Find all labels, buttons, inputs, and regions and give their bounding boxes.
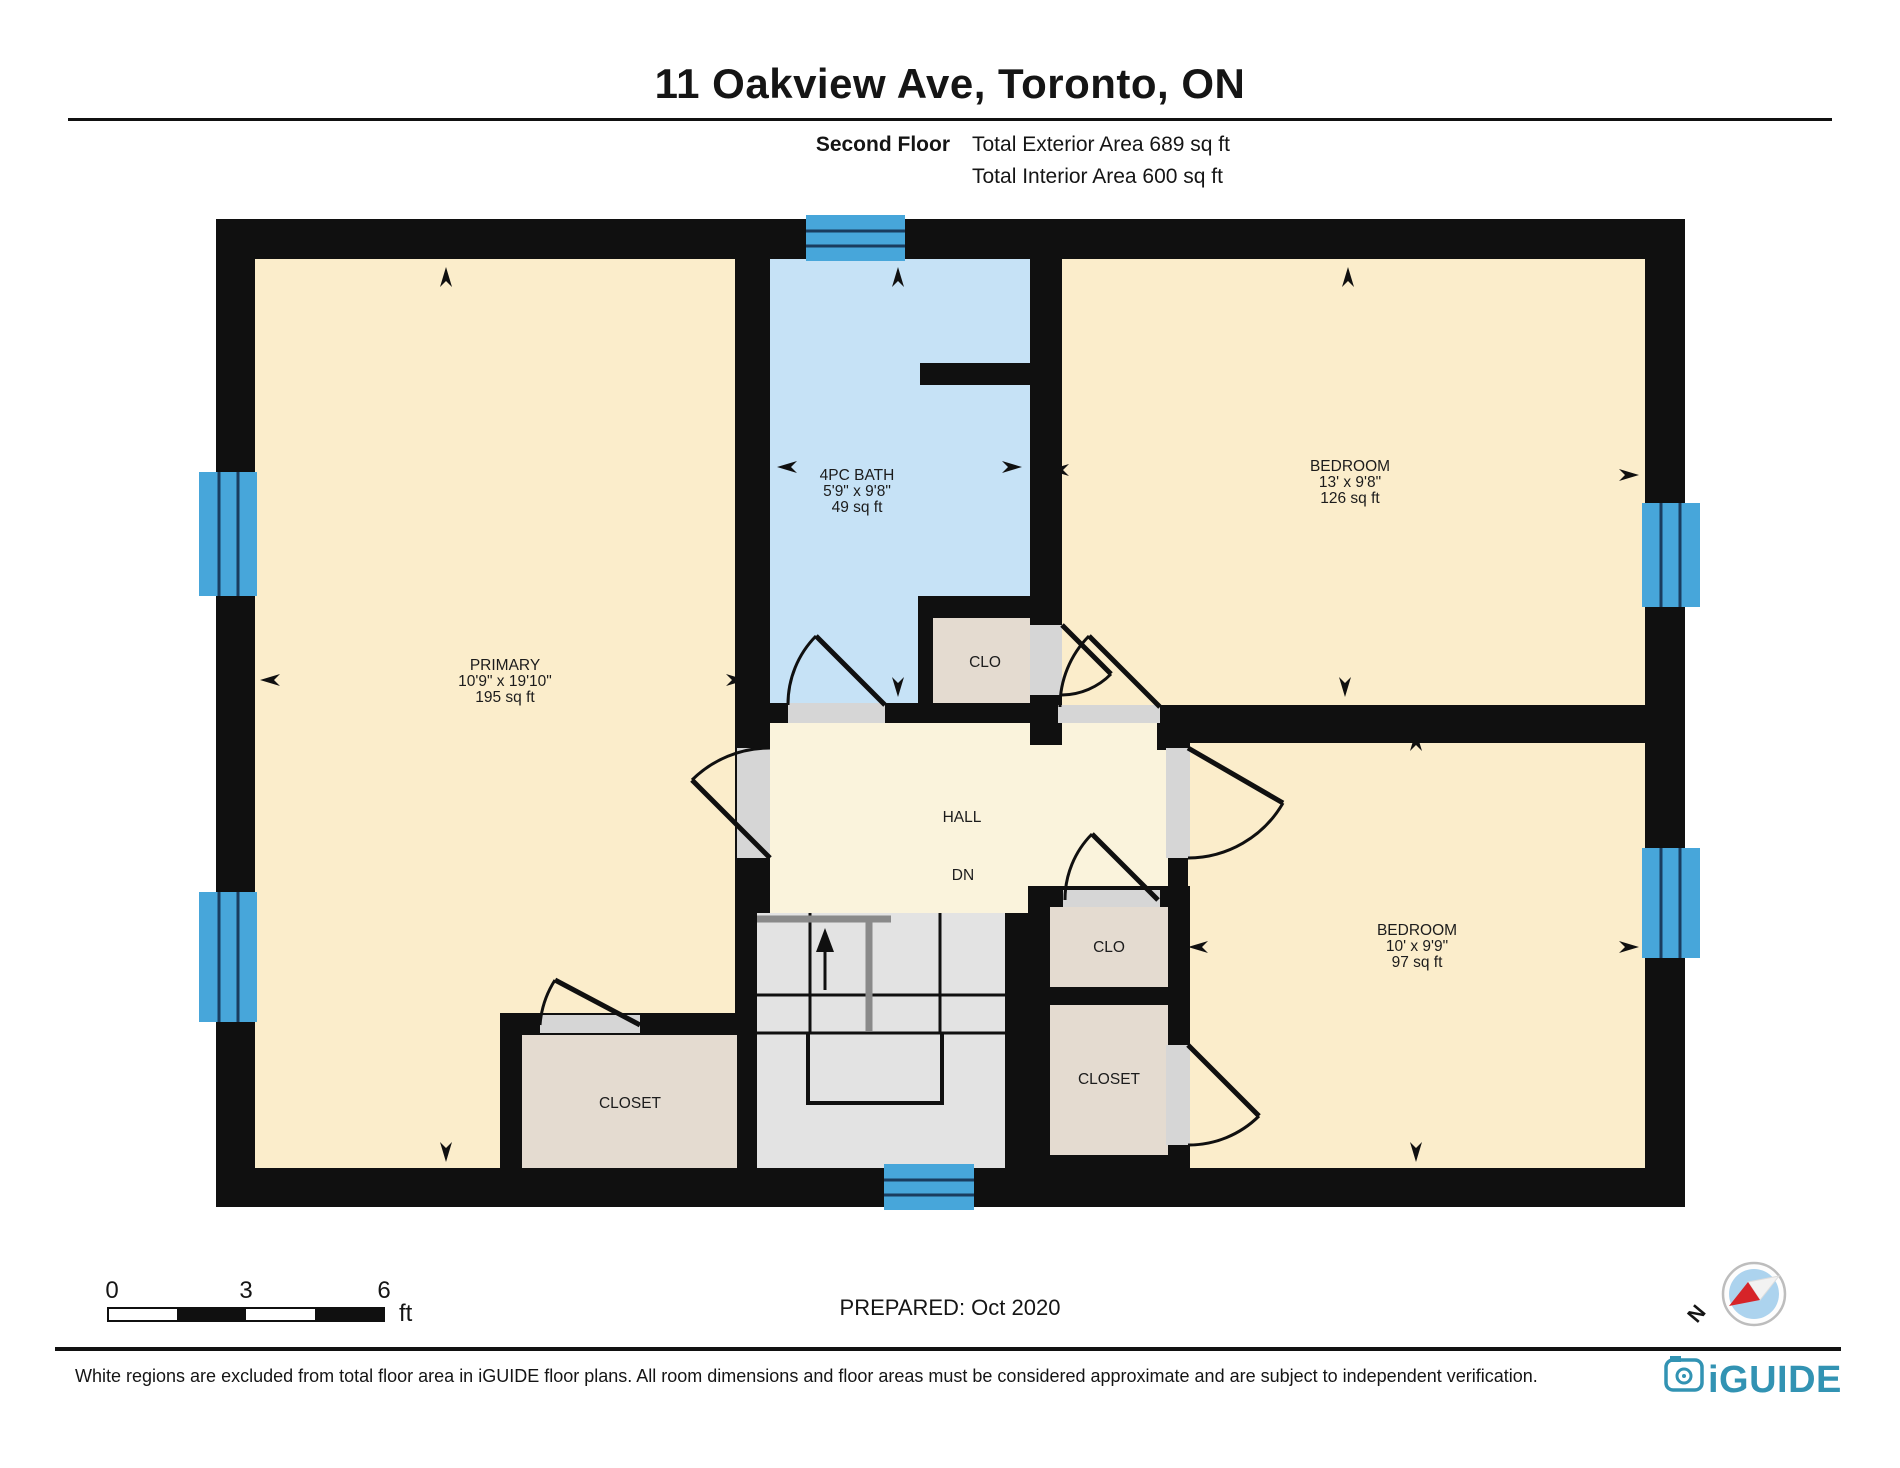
bath-name: 4PC BATH: [820, 467, 895, 484]
bedroom-bottom-area: 97 sq ft: [1392, 954, 1444, 971]
wall-bath-stub: [920, 363, 1032, 385]
stairwell: [757, 913, 1005, 1168]
closet-bedroom-top-label: CLO: [969, 654, 1001, 671]
wall-bath-junction: [1030, 703, 1062, 745]
primary-area: 195 sq ft: [475, 689, 535, 706]
floor-plan-canvas: PRIMARY 10'9" x 19'10" 195 sq ft 4PC BAT…: [0, 0, 1900, 1468]
primary-name: PRIMARY: [470, 657, 540, 674]
window-left-upper: [199, 472, 257, 596]
bedroom-bottom-dims: 10' x 9'9": [1386, 938, 1448, 955]
prepared-date: PREPARED: Oct 2020: [0, 1295, 1900, 1321]
iguide-logo: iGUIDE: [1666, 1356, 1842, 1401]
window-left-lower: [199, 892, 257, 1022]
window-bottom: [884, 1164, 974, 1210]
window-right-lower: [1642, 848, 1700, 958]
closet-hall-label: CLO: [1093, 939, 1125, 956]
footer-divider: [55, 1347, 1841, 1351]
bedroom-top-name: BEDROOM: [1310, 458, 1390, 475]
window-right-upper: [1642, 503, 1700, 607]
bedroom-top-area: 126 sq ft: [1320, 490, 1380, 507]
bedroom-bottom-name: BEDROOM: [1377, 922, 1457, 939]
footer-disclaimer: White regions are excluded from total fl…: [75, 1366, 1538, 1387]
bath-dims: 5'9" x 9'8": [823, 483, 891, 500]
primary-dims: 10'9" x 19'10": [458, 673, 552, 690]
bedroom-top-dims: 13' x 9'8": [1319, 474, 1381, 491]
stairs-down-label: DN: [952, 867, 974, 884]
closet-bedroom-bottom-label: CLOSET: [1078, 1071, 1141, 1088]
bath-area: 49 sq ft: [832, 499, 884, 516]
hall-name: HALL: [943, 809, 982, 826]
closet-primary-label: CLOSET: [599, 1095, 662, 1112]
iguide-logo-text: iGUIDE: [1708, 1359, 1842, 1401]
window-top: [806, 215, 905, 261]
wall-hall-corner: [1157, 705, 1190, 750]
